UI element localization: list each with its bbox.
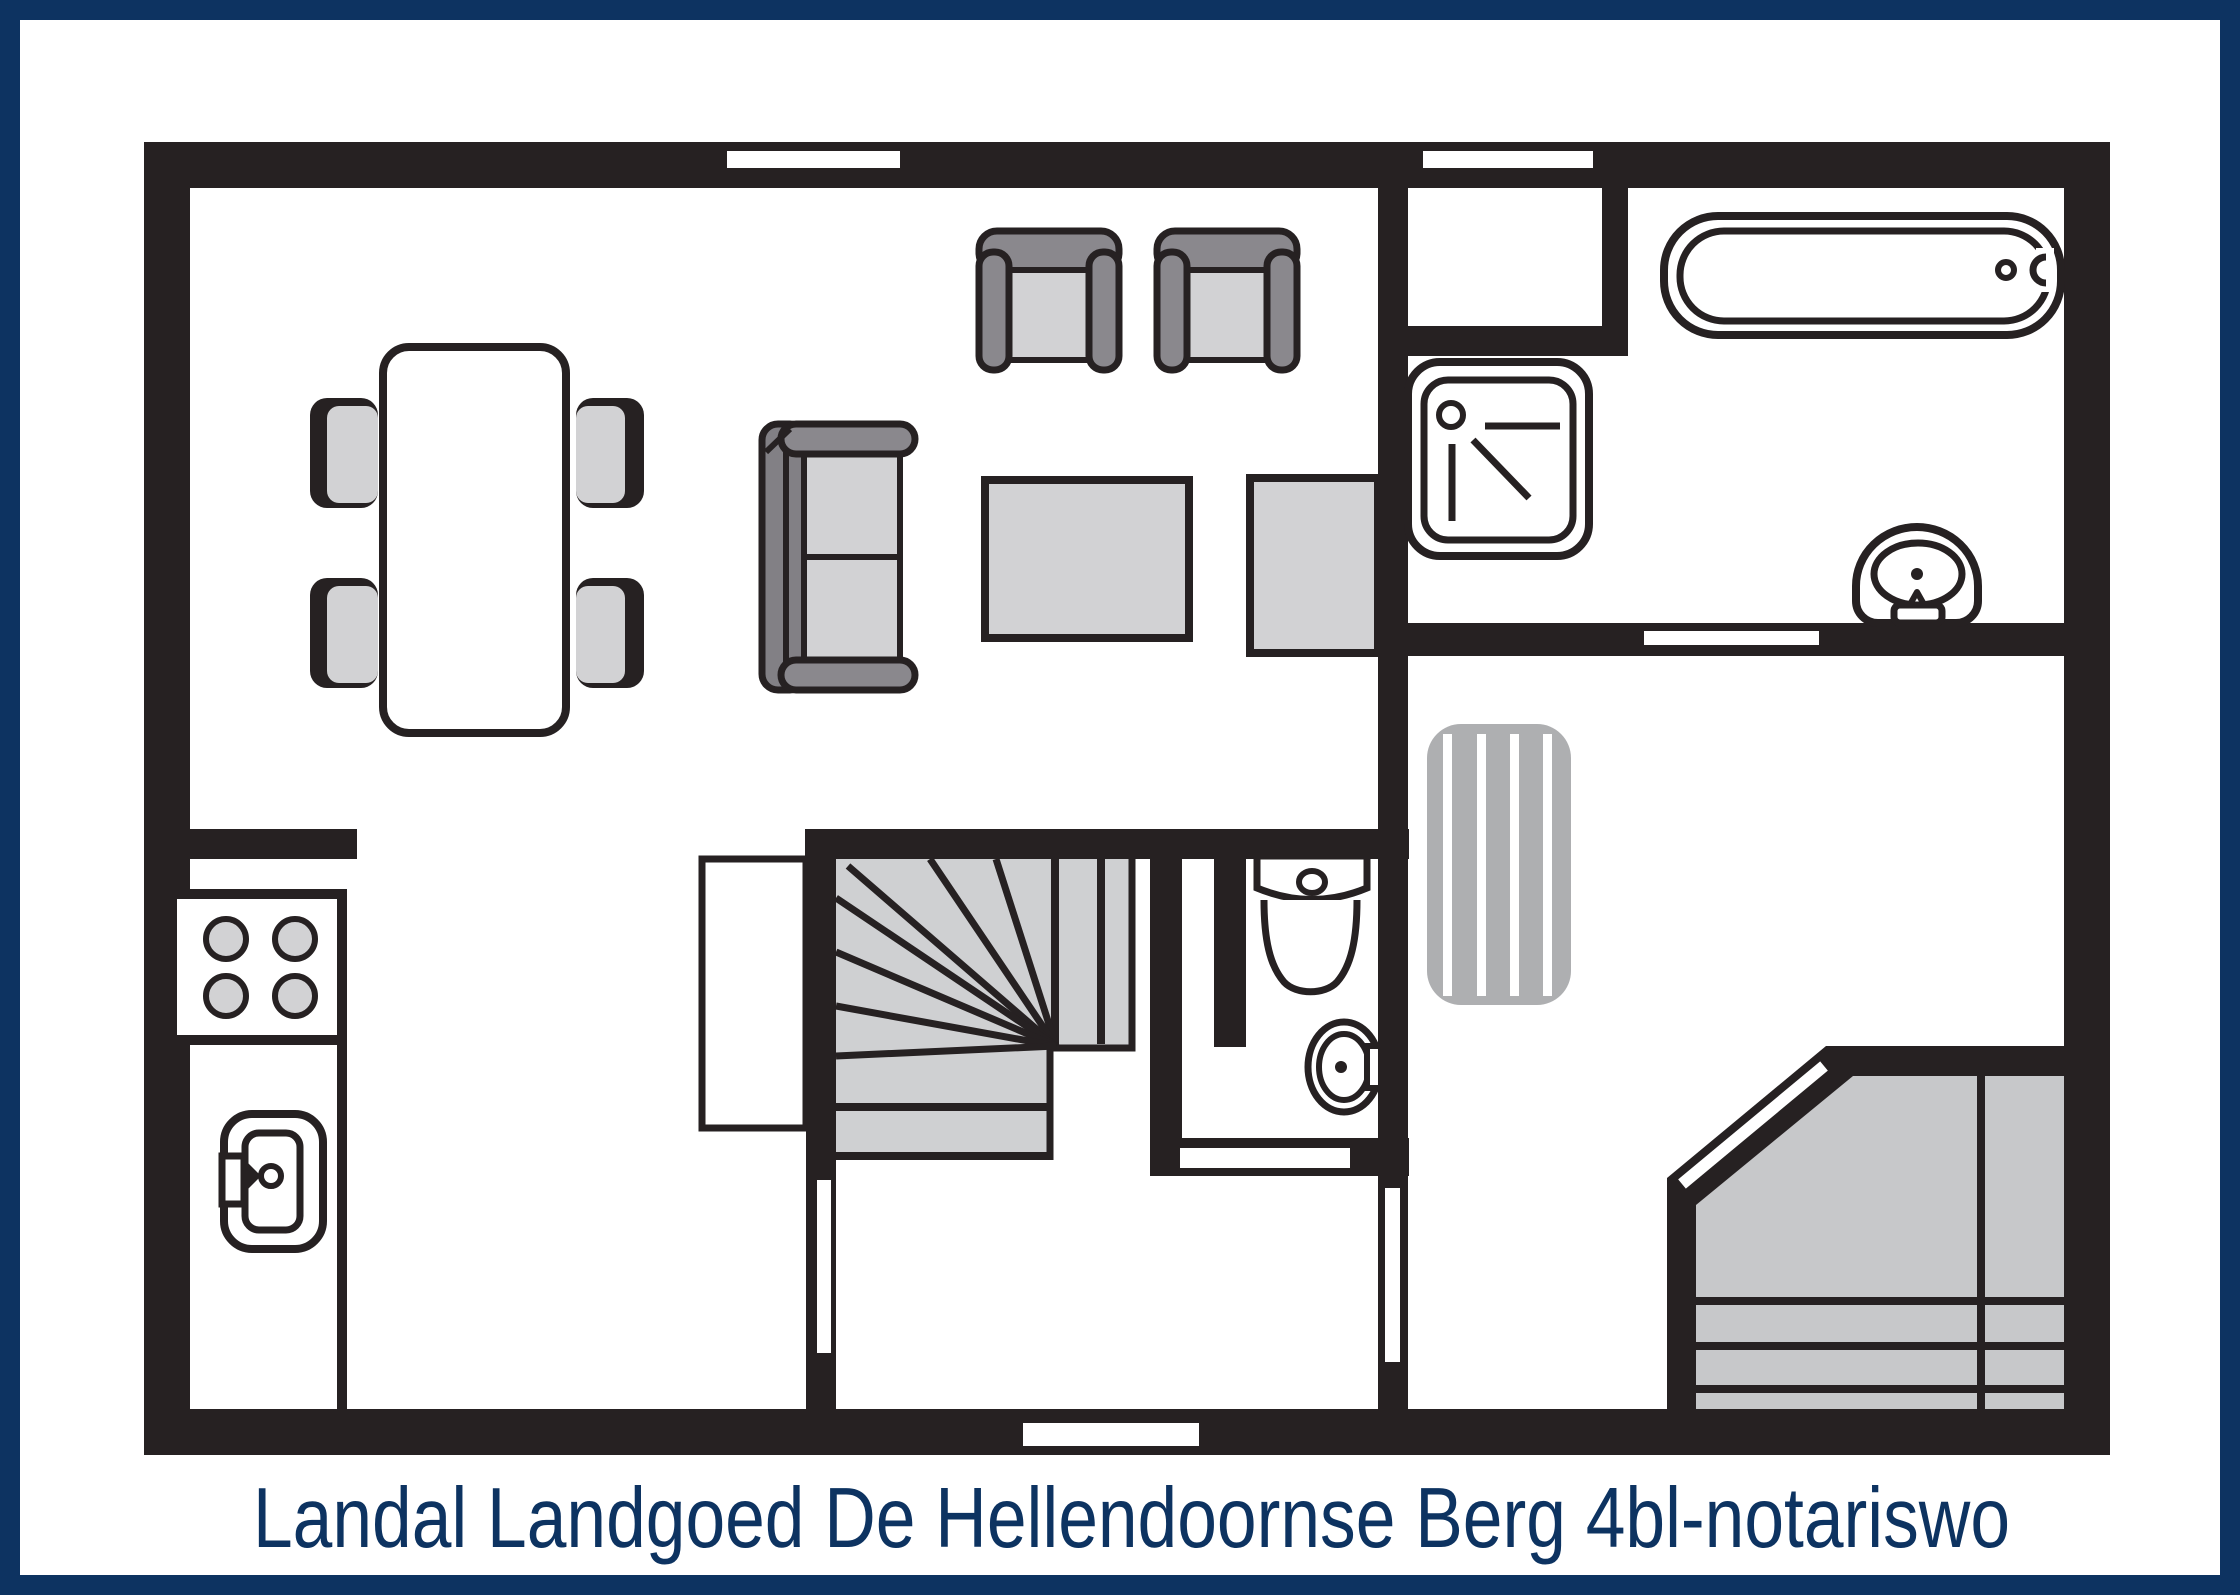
svg-text:Landal Landgoed De Hellendoorn: Landal Landgoed De Hellendoornse Berg 4b… (253, 1471, 2010, 1566)
